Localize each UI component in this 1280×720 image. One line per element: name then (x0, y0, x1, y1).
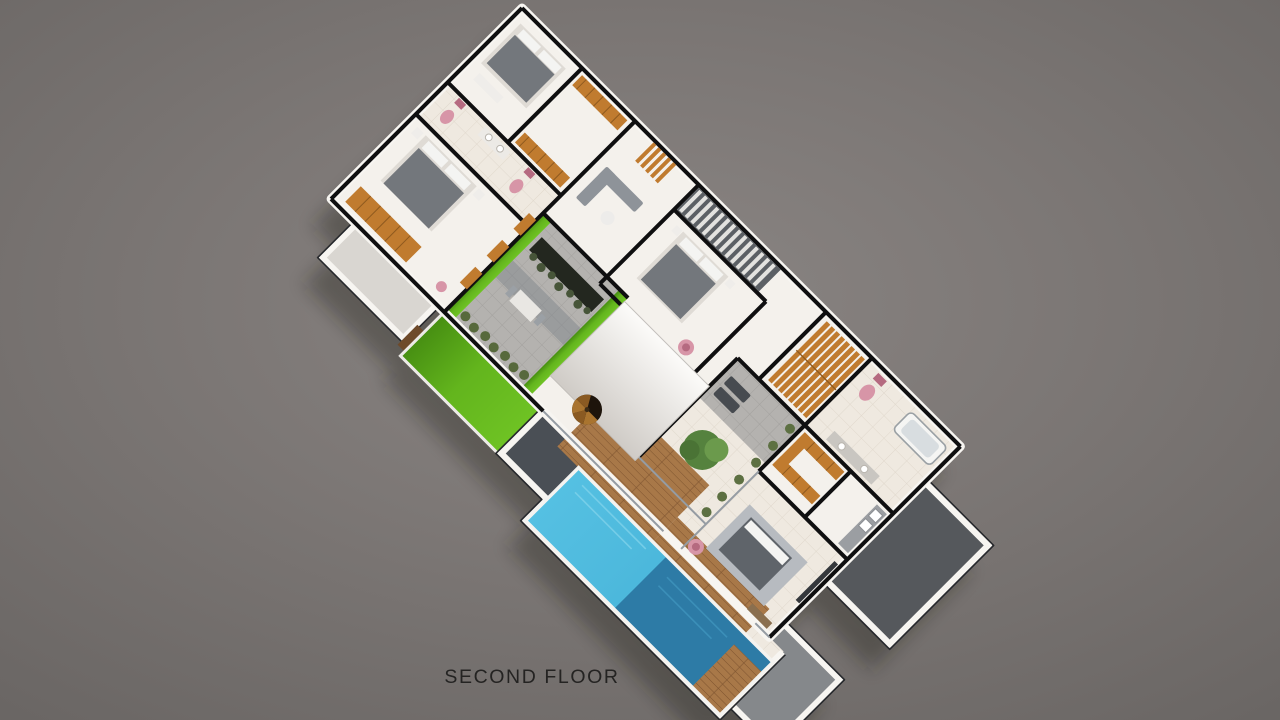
floorplan-scene: SECOND FLOOR (0, 0, 1280, 720)
floor-caption: SECOND FLOOR (444, 666, 619, 688)
render-stage: SECOND FLOOR (0, 0, 1280, 720)
